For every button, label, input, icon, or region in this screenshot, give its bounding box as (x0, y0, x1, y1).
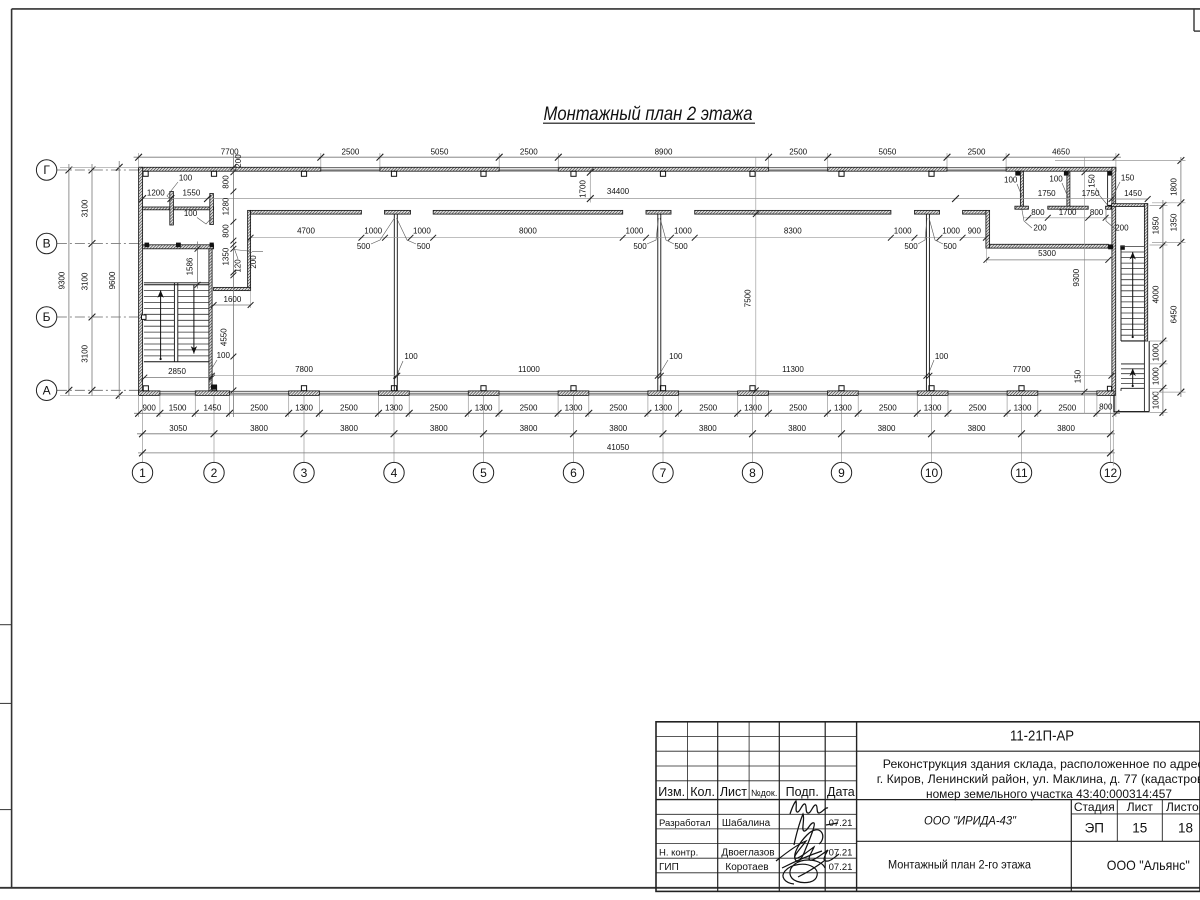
svg-text:2500: 2500 (789, 148, 807, 157)
svg-text:1000: 1000 (1151, 367, 1160, 385)
svg-text:Изм.: Изм. (658, 785, 685, 799)
svg-text:В: В (43, 237, 51, 251)
svg-text:2500: 2500 (340, 404, 358, 413)
svg-text:3: 3 (301, 466, 308, 480)
svg-text:11300: 11300 (782, 365, 804, 374)
svg-text:34400: 34400 (607, 187, 630, 196)
svg-text:11: 11 (1015, 466, 1028, 480)
svg-text:1200: 1200 (147, 189, 165, 198)
svg-text:100: 100 (669, 352, 683, 361)
svg-text:1000: 1000 (413, 226, 431, 235)
svg-text:3100: 3100 (81, 272, 90, 290)
svg-text:Листов: Листов (1166, 800, 1200, 814)
svg-text:1000: 1000 (942, 226, 960, 235)
svg-text:Двоеглазов: Двоеглазов (721, 848, 774, 859)
svg-text:900: 900 (968, 226, 982, 235)
svg-text:9300: 9300 (1072, 268, 1081, 286)
svg-text:500: 500 (357, 242, 371, 251)
svg-text:2500: 2500 (968, 148, 986, 157)
svg-text:9600: 9600 (108, 271, 117, 289)
svg-text:1000: 1000 (626, 226, 644, 235)
svg-text:2500: 2500 (609, 404, 627, 413)
svg-text:1300: 1300 (1014, 404, 1032, 413)
svg-text:15: 15 (1132, 821, 1147, 836)
svg-text:100: 100 (217, 351, 231, 360)
svg-text:1000: 1000 (364, 226, 382, 235)
svg-text:1300: 1300 (475, 404, 493, 413)
svg-text:800: 800 (1031, 208, 1045, 217)
svg-text:150: 150 (1121, 173, 1135, 182)
svg-text:500: 500 (417, 242, 431, 251)
svg-text:41050: 41050 (607, 443, 630, 452)
svg-text:800: 800 (222, 175, 231, 189)
svg-text:Б: Б (43, 310, 51, 324)
svg-text:500: 500 (674, 242, 688, 251)
svg-text:7800: 7800 (295, 365, 313, 374)
svg-text:3100: 3100 (81, 344, 90, 362)
svg-text:1300: 1300 (744, 404, 762, 413)
svg-text:А: А (43, 384, 51, 398)
svg-text:500: 500 (633, 242, 647, 251)
svg-text:120: 120 (234, 259, 243, 273)
svg-text:12: 12 (1104, 466, 1118, 480)
svg-text:8900: 8900 (655, 148, 673, 157)
svg-text:7700: 7700 (1013, 365, 1031, 374)
svg-text:7500: 7500 (744, 289, 753, 307)
svg-text:9: 9 (838, 466, 845, 480)
svg-text:100: 100 (1004, 175, 1018, 184)
svg-text:800: 800 (1099, 403, 1113, 412)
svg-text:2500: 2500 (789, 404, 807, 413)
svg-text:3800: 3800 (520, 424, 538, 433)
svg-text:2500: 2500 (1058, 404, 1076, 413)
svg-text:4000: 4000 (1151, 285, 1160, 303)
svg-text:ООО "Альянс": ООО "Альянс" (1107, 857, 1190, 873)
svg-text:1800: 1800 (1169, 178, 1178, 196)
svg-text:Кол.: Кол. (690, 785, 715, 799)
svg-text:100: 100 (184, 209, 198, 218)
svg-text:1000: 1000 (674, 226, 692, 235)
svg-text:Разработал: Разработал (659, 818, 711, 829)
svg-text:5050: 5050 (431, 148, 449, 157)
svg-text:1300: 1300 (834, 404, 852, 413)
svg-text:3800: 3800 (340, 424, 358, 433)
svg-text:г. Киров, Ленинский район, ул.: г. Киров, Ленинский район, ул. Маклина, … (877, 772, 1200, 786)
svg-text:100: 100 (179, 174, 193, 183)
svg-text:1300: 1300 (295, 404, 313, 413)
svg-text:3800: 3800 (430, 424, 448, 433)
svg-text:11-21П-АР: 11-21П-АР (1010, 729, 1074, 745)
svg-text:Коротаев: Коротаев (725, 862, 768, 873)
svg-text:1500: 1500 (169, 404, 187, 413)
svg-text:1586: 1586 (186, 257, 195, 275)
svg-text:ЭП: ЭП (1085, 821, 1104, 836)
svg-text:10: 10 (925, 466, 939, 480)
svg-text:2500: 2500 (430, 404, 448, 413)
svg-text:1280: 1280 (222, 197, 231, 215)
svg-text:1700: 1700 (1059, 208, 1077, 217)
svg-text:ООО "ИРИДА-43": ООО "ИРИДА-43" (924, 814, 1017, 828)
svg-text:150: 150 (1088, 174, 1097, 188)
svg-text:8300: 8300 (784, 226, 802, 235)
svg-text:Лист: Лист (1127, 800, 1154, 814)
svg-text:Монтажный план 2-го этажа: Монтажный план 2-го этажа (888, 858, 1031, 872)
svg-text:1000: 1000 (1151, 391, 1160, 409)
svg-text:4700: 4700 (297, 226, 315, 235)
svg-text:Монтажный план 2 этажа: Монтажный план 2 этажа (544, 104, 753, 125)
svg-text:07.21: 07.21 (829, 848, 853, 859)
svg-text:4: 4 (391, 466, 398, 480)
svg-text:номер земельного участка 43:40: номер земельного участка 43:40:000314:45… (926, 787, 1172, 801)
svg-text:200: 200 (234, 154, 243, 168)
svg-text:1300: 1300 (385, 404, 403, 413)
svg-text:1300: 1300 (924, 404, 942, 413)
svg-text:5: 5 (480, 466, 487, 480)
svg-text:5300: 5300 (1038, 249, 1056, 258)
svg-text:1000: 1000 (894, 226, 912, 235)
svg-text:900: 900 (143, 404, 157, 413)
svg-text:3800: 3800 (788, 424, 806, 433)
svg-text:8000: 8000 (519, 226, 537, 235)
svg-text:3800: 3800 (878, 424, 896, 433)
svg-text:1850: 1850 (1151, 216, 1160, 234)
svg-text:№док.: №док. (751, 788, 777, 798)
svg-text:9300: 9300 (58, 271, 67, 289)
svg-text:2500: 2500 (250, 404, 268, 413)
svg-text:1600: 1600 (224, 295, 242, 304)
svg-text:200: 200 (249, 255, 258, 269)
svg-text:11000: 11000 (518, 365, 540, 374)
svg-text:1450: 1450 (1124, 189, 1142, 198)
svg-text:100: 100 (1049, 175, 1063, 184)
svg-text:1350: 1350 (222, 247, 231, 265)
svg-text:Дата: Дата (827, 785, 855, 799)
svg-text:6: 6 (570, 466, 577, 480)
svg-text:500: 500 (943, 242, 957, 251)
svg-text:3050: 3050 (169, 424, 187, 433)
svg-text:1450: 1450 (204, 404, 222, 413)
svg-text:Лист: Лист (720, 785, 747, 799)
svg-text:3800: 3800 (699, 424, 717, 433)
svg-text:1000: 1000 (1151, 343, 1160, 361)
svg-text:1350: 1350 (1169, 213, 1178, 231)
svg-text:200: 200 (1033, 224, 1047, 233)
svg-text:4650: 4650 (1052, 148, 1070, 157)
svg-text:Подп.: Подп. (786, 785, 819, 799)
svg-text:1700: 1700 (578, 180, 587, 198)
svg-text:2850: 2850 (168, 367, 186, 376)
svg-text:6450: 6450 (1169, 305, 1178, 323)
svg-text:18: 18 (1178, 821, 1193, 836)
svg-text:1300: 1300 (654, 404, 672, 413)
svg-text:500: 500 (904, 242, 918, 251)
svg-text:1: 1 (139, 466, 146, 480)
svg-text:1300: 1300 (565, 404, 583, 413)
svg-text:2500: 2500 (520, 148, 538, 157)
svg-text:3100: 3100 (81, 199, 90, 217)
svg-text:7: 7 (660, 466, 667, 480)
svg-text:1550: 1550 (183, 189, 201, 198)
svg-text:Г: Г (43, 163, 50, 177)
svg-text:Реконструкция здания склада, р: Реконструкция здания склада, расположенн… (883, 757, 1200, 771)
svg-text:4550: 4550 (219, 328, 228, 346)
svg-text:3800: 3800 (968, 424, 986, 433)
svg-text:Стадия: Стадия (1074, 800, 1115, 814)
svg-text:07.21: 07.21 (829, 862, 853, 873)
svg-text:100: 100 (935, 352, 949, 361)
svg-text:ГИП: ГИП (659, 862, 679, 873)
svg-text:3800: 3800 (1057, 424, 1075, 433)
svg-text:2500: 2500 (342, 148, 360, 157)
svg-text:2500: 2500 (879, 404, 897, 413)
svg-text:800: 800 (1090, 208, 1104, 217)
svg-text:2: 2 (211, 466, 218, 480)
svg-text:3800: 3800 (609, 424, 627, 433)
svg-text:150: 150 (1074, 369, 1083, 383)
svg-text:Шабалина: Шабалина (722, 817, 771, 829)
svg-text:100: 100 (404, 352, 418, 361)
svg-text:3800: 3800 (250, 424, 268, 433)
svg-text:8: 8 (749, 466, 756, 480)
svg-text:2500: 2500 (699, 404, 717, 413)
svg-text:5050: 5050 (879, 148, 897, 157)
svg-text:Н. контр.: Н. контр. (659, 848, 698, 859)
svg-text:2500: 2500 (520, 404, 538, 413)
svg-text:1750: 1750 (1038, 189, 1056, 198)
svg-text:800: 800 (222, 224, 231, 238)
svg-text:200: 200 (1115, 224, 1129, 233)
svg-text:2500: 2500 (969, 404, 987, 413)
